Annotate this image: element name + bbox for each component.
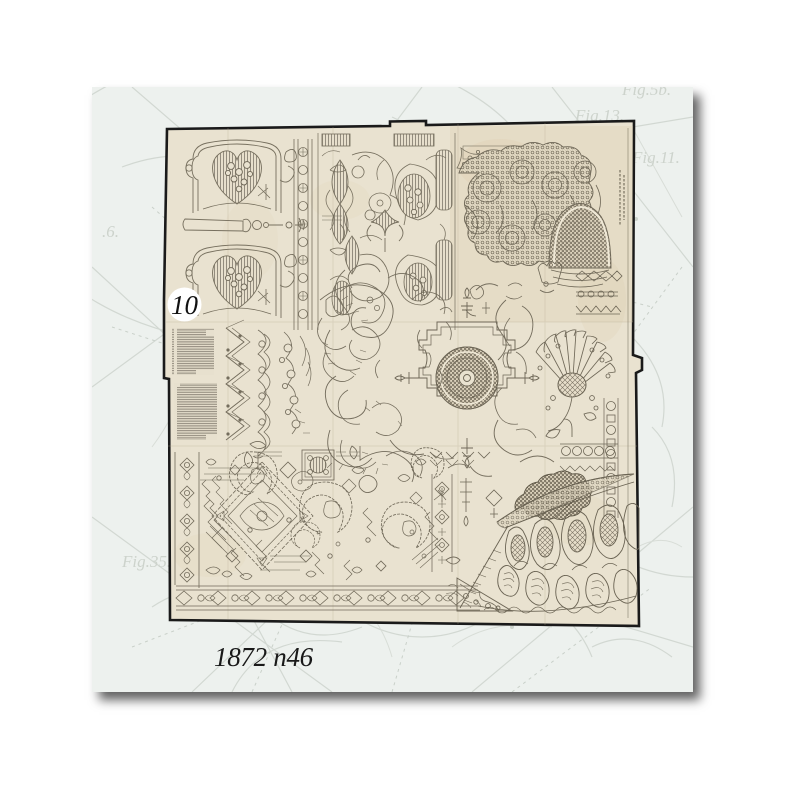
svg-text:10: 10 <box>171 290 199 320</box>
